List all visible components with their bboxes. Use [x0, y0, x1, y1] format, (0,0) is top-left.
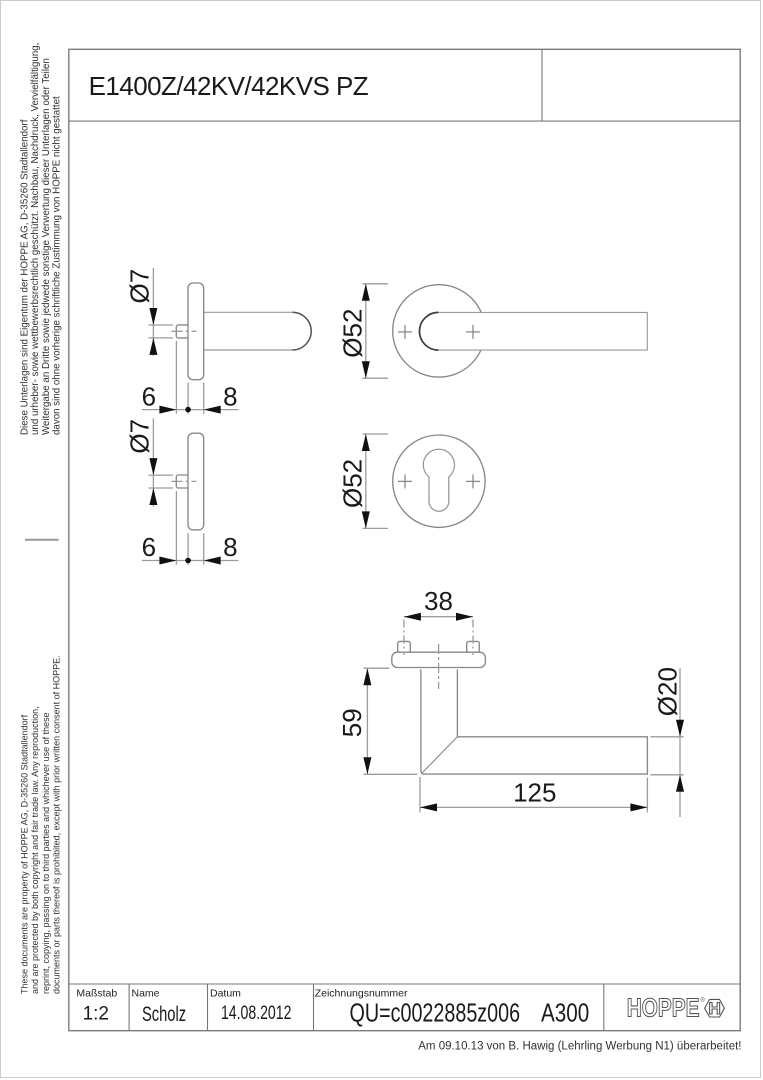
svg-text:Name: Name: [132, 987, 160, 999]
svg-text:and are protected by both copy: and are protected by both copyright and …: [30, 706, 40, 994]
svg-text:Am 09.10.13 von B. Hawig (Lehr: Am 09.10.13 von B. Hawig (Lehrling Werbu…: [418, 1041, 741, 1053]
svg-text:8: 8: [223, 532, 237, 562]
svg-text:H: H: [708, 999, 720, 1018]
svg-text:6: 6: [142, 381, 156, 411]
svg-text:1:2: 1:2: [83, 1004, 109, 1025]
svg-text:6: 6: [142, 532, 156, 562]
svg-text:14.08.2012: 14.08.2012: [221, 1002, 291, 1024]
svg-text:Ø52: Ø52: [338, 459, 368, 508]
svg-text:8: 8: [223, 381, 237, 411]
svg-text:Scholz: Scholz: [142, 1002, 186, 1025]
svg-text:E1400Z/42KV/42KVS PZ: E1400Z/42KV/42KVS PZ: [89, 71, 369, 101]
svg-text:Ø20: Ø20: [653, 667, 683, 716]
svg-text:125: 125: [513, 778, 556, 808]
svg-text:QU=c0022885z006: QU=c0022885z006: [350, 998, 521, 1027]
svg-text:Ø7: Ø7: [124, 269, 154, 304]
svg-text:®: ®: [700, 997, 705, 1004]
svg-text:HOPPE: HOPPE: [627, 993, 700, 1022]
svg-text:These documents are property o: These documents are property of HOPPE AG…: [20, 714, 30, 994]
svg-text:Diese Unterlagen sind Eigentum: Diese Unterlagen sind Eigentum der HOPPE…: [20, 119, 31, 435]
svg-text:documents or parts thereof is: documents or parts thereof is prohibited…: [51, 655, 61, 994]
svg-text:Maßstab: Maßstab: [76, 987, 117, 999]
svg-text:Weitergabe an Dritte sowie jed: Weitergabe an Dritte sowie jedwede sonst…: [41, 58, 52, 435]
svg-text:59: 59: [337, 708, 367, 737]
svg-text:Ø52: Ø52: [338, 309, 368, 358]
svg-text:A300: A300: [541, 998, 589, 1027]
svg-text:reprint, copying, passing on t: reprint, copying, passing on to third pa…: [41, 712, 51, 994]
svg-text:davon sind ohne vorherige schr: davon sind ohne vorherige schriftliche Z…: [51, 96, 62, 435]
svg-text:Datum: Datum: [210, 987, 241, 999]
svg-text:und urheber- sowie wettbewerbs: und urheber- sowie wettbewerbsrechtlich …: [30, 43, 41, 435]
svg-text:Ø7: Ø7: [124, 419, 154, 454]
svg-text:38: 38: [424, 586, 453, 616]
